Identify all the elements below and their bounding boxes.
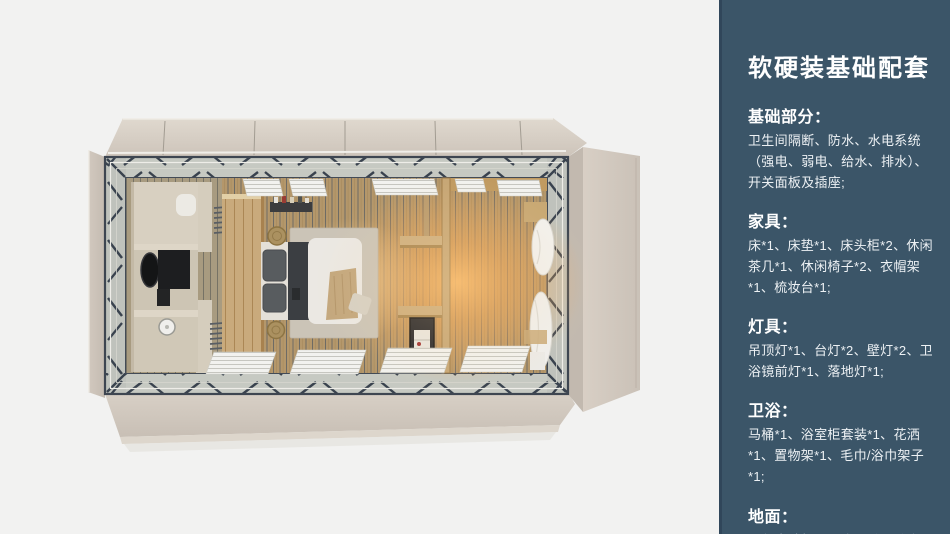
section-basics: 基础部分： 卫生间隔断、防水、水电系统（强电、弱电、给水、排水）、开关面板及插座… (748, 103, 936, 193)
section-heading: 灯具： (748, 313, 936, 337)
dresser-rack (270, 196, 312, 212)
section-body: 吊顶灯*1、台灯*2、壁灯*2、卫浴镜前灯*1、落地灯*1; (748, 340, 936, 382)
section-heading: 基础部分： (748, 103, 936, 127)
section-heading: 卫浴： (748, 397, 936, 421)
section-lighting: 灯具： 吊顶灯*1、台灯*2、壁灯*2、卫浴镜前灯*1、落地灯*1; (748, 313, 936, 382)
section-heading: 地面： (748, 503, 936, 527)
pillow (263, 250, 286, 281)
side-stool (268, 227, 286, 245)
panel-title: 软硬装基础配套 (748, 48, 936, 83)
section-flooring: 地面： 强化木地板、卫生间防滑防潮石塑板; (748, 503, 936, 534)
side-stool (268, 322, 285, 339)
section-body: 床*1、床垫*1、床头柜*2、休闲茶几*1、休闲椅子*2、衣帽架*1、梳妆台*1… (748, 235, 936, 298)
slide: 软硬装基础配套 基础部分： 卫生间隔断、防水、水电系统（强电、弱电、给水、排水）… (0, 0, 950, 534)
sink-basin (141, 253, 159, 287)
floorplan-illustration (0, 0, 716, 534)
info-panel: 软硬装基础配套 基础部分： 卫生间隔断、防水、水电系统（强电、弱电、给水、排水）… (719, 0, 950, 534)
section-body: 卫生间隔断、防水、水电系统（强电、弱电、给水、排水）、开关面板及插座; (748, 130, 936, 193)
bathroom-wall (198, 182, 212, 252)
section-body: 强化木地板、卫生间防滑防潮石塑板; (748, 530, 936, 534)
pillow (263, 284, 286, 312)
lamp-glow (315, 175, 595, 395)
vanity-counter (158, 248, 190, 289)
section-furniture: 家具： 床*1、床垫*1、床头柜*2、休闲茶几*1、休闲椅子*2、衣帽架*1、梳… (748, 208, 936, 298)
section-heading: 家具： (748, 208, 936, 232)
headboard-wall (222, 194, 264, 358)
section-bathroom: 卫浴： 马桶*1、浴室柜套装*1、花洒*1、置物架*1、毛巾/浴巾架子*1; (748, 397, 936, 487)
section-body: 马桶*1、浴室柜套装*1、花洒*1、置物架*1、毛巾/浴巾架子*1; (748, 424, 936, 487)
floorplan-area (0, 0, 716, 534)
toilet (176, 194, 196, 216)
